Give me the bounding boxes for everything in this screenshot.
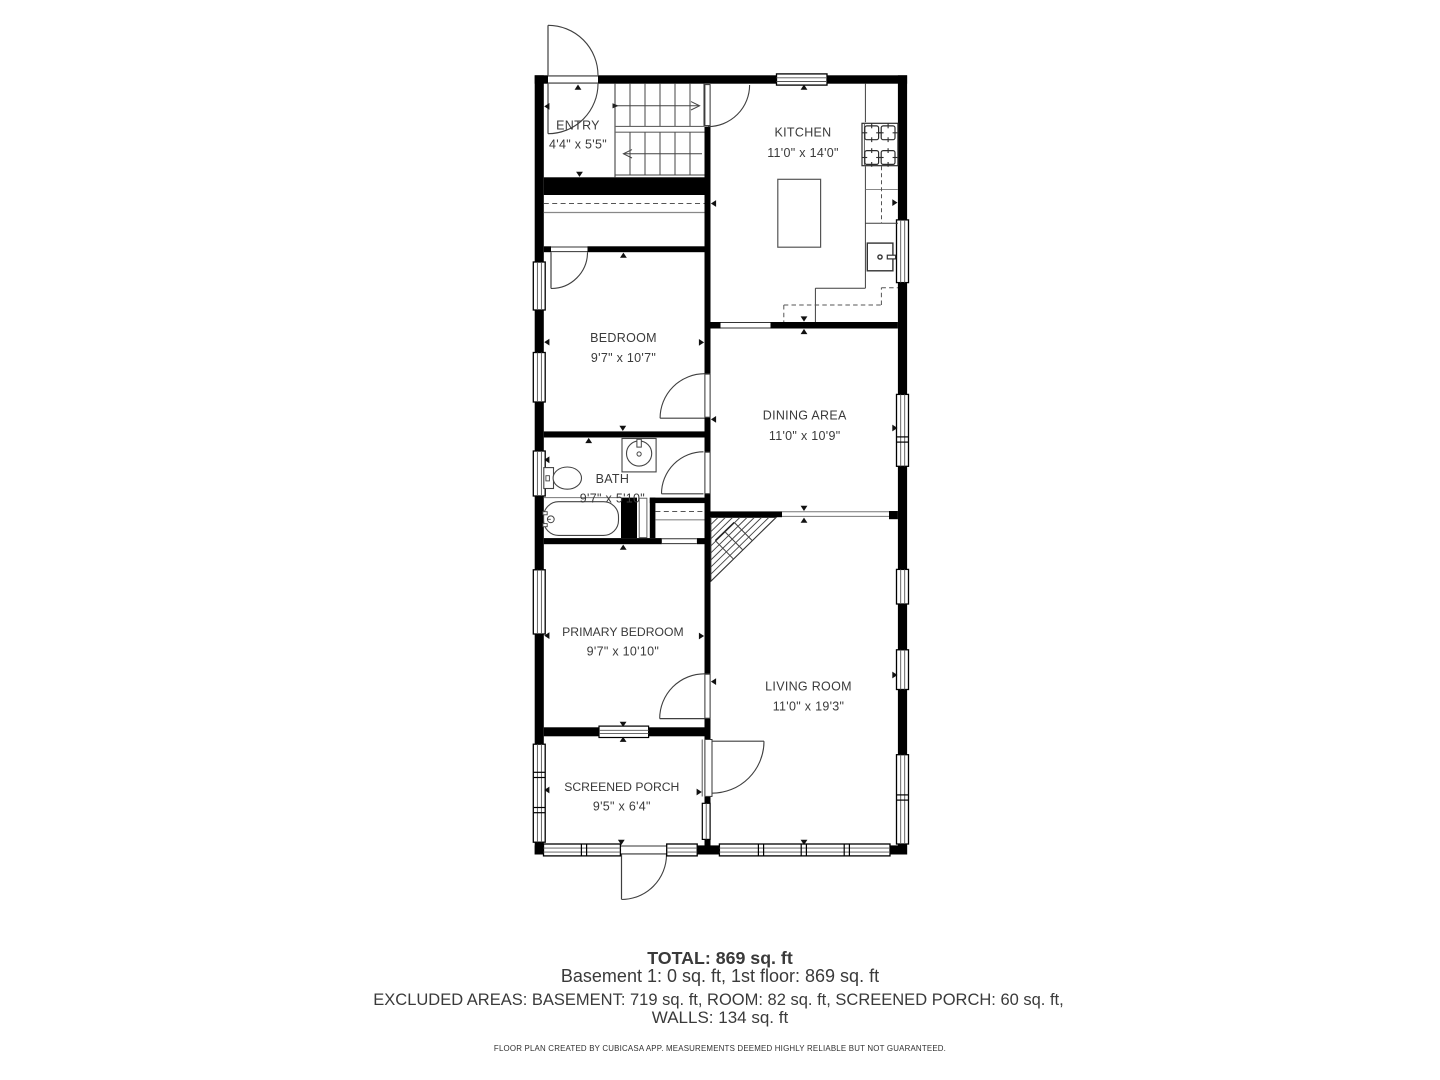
svg-text:11'0" x 10'9": 11'0" x 10'9" <box>769 429 841 443</box>
svg-text:PRIMARY BEDROOM: PRIMARY BEDROOM <box>562 625 683 639</box>
svg-text:11'0" x 14'0": 11'0" x 14'0" <box>767 146 839 160</box>
svg-text:BATH: BATH <box>596 472 630 486</box>
svg-text:9'7" x 10'7": 9'7" x 10'7" <box>591 351 656 365</box>
svg-text:9'5" x 6'4": 9'5" x 6'4" <box>593 800 651 814</box>
svg-text:DINING AREA: DINING AREA <box>763 409 847 423</box>
svg-text:11'0" x 19'3": 11'0" x 19'3" <box>773 700 845 714</box>
svg-text:BEDROOM: BEDROOM <box>590 331 657 345</box>
svg-text:FLOOR PLAN CREATED BY CUBICASA: FLOOR PLAN CREATED BY CUBICASA APP. MEAS… <box>494 1044 946 1053</box>
svg-text:TOTAL: 869 sq. ft: TOTAL: 869 sq. ft <box>647 948 793 968</box>
svg-text:9'7" x 10'10": 9'7" x 10'10" <box>587 645 659 659</box>
svg-text:KITCHEN: KITCHEN <box>775 126 832 140</box>
svg-text:EXCLUDED AREAS: BASEMENT: 719: EXCLUDED AREAS: BASEMENT: 719 sq. ft, RO… <box>373 991 1063 1009</box>
svg-text:9'7" x 5'10": 9'7" x 5'10" <box>580 492 645 506</box>
svg-text:Basement 1: 0 sq. ft, 1st floo: Basement 1: 0 sq. ft, 1st floor: 869 sq.… <box>561 966 879 986</box>
svg-text:4'4" x 5'5": 4'4" x 5'5" <box>549 138 607 152</box>
svg-text:WALLS: 134 sq. ft: WALLS: 134 sq. ft <box>652 1008 789 1027</box>
svg-text:LIVING ROOM: LIVING ROOM <box>765 680 852 694</box>
svg-text:ENTRY: ENTRY <box>556 119 600 133</box>
svg-text:SCREENED PORCH: SCREENED PORCH <box>564 780 679 794</box>
